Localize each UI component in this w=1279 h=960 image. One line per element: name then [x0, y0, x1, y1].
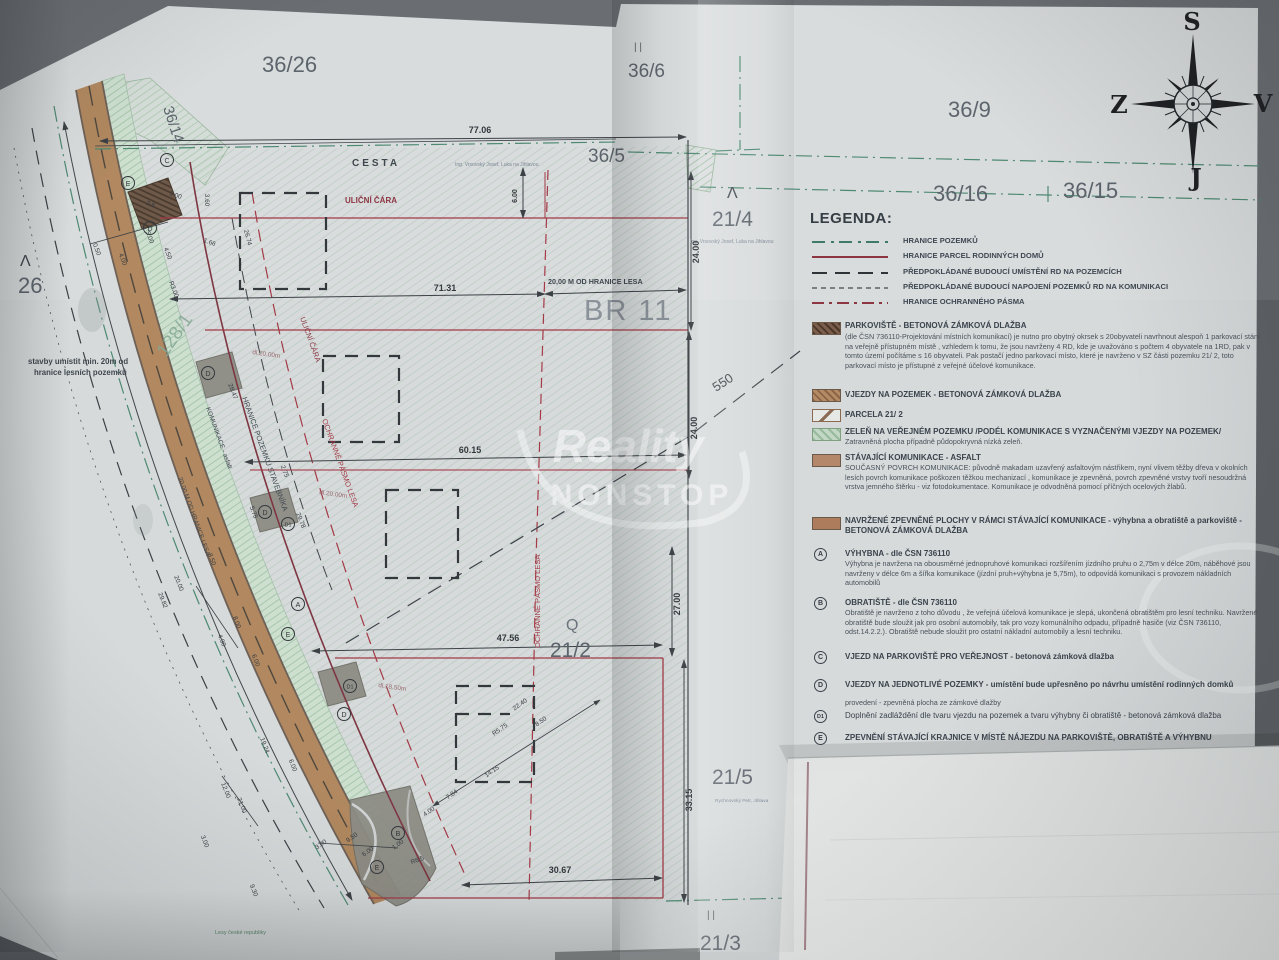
legend-point-body: Výhybna je navržena na obousměrné jednop…: [845, 559, 1263, 588]
legend-panel: LEGENDA: HRANICE POZEMKŮ HRANICE PARCEL …: [0, 0, 1279, 960]
legend-swatch-komunikace: [812, 454, 841, 467]
legend-point-title: OBRATIŠTĚ - dle ČSN 736110: [845, 598, 1257, 608]
legend-point-circle-d: D: [814, 679, 827, 692]
legend-point-title: VJEZDY NA JEDNOTLIVÉ POZEMKY - umístění …: [845, 680, 1257, 690]
legend-swatch-navrzene: [812, 517, 841, 530]
legend-area-body: (dle ČSN 736110-Projektování místních ko…: [845, 332, 1263, 371]
legend-swatch-vjezdy: [812, 389, 841, 402]
legend-point-circle-b: B: [814, 597, 827, 610]
legend-point-circle-d1: D1: [814, 710, 827, 723]
legend-line-sample-ochranne-pasmo: [812, 302, 888, 304]
legend-line-sample-hranice-parcel: [812, 256, 888, 258]
legend-line-label: HRANICE OCHRANNÉHO PÁSMA: [903, 297, 1025, 306]
legend-point-title: Doplnění zadláždění dle tvaru vjezdu na …: [845, 711, 1257, 721]
legend-point-body: Obratiště je navrženo z toho důvodu , že…: [845, 608, 1263, 637]
legend-swatch-zelen: [812, 428, 841, 441]
legend-area-title: STÁVAJÍCÍ KOMUNIKACE - ASFALT: [845, 453, 1257, 463]
legend-point-title: VJEZD NA PARKOVIŠTĚ PRO VEŘEJNOST - beto…: [845, 652, 1257, 662]
legend-area-title: ZELEŇ NA VEŘEJNÉM POZEMKU /PODÉL KOMUNIK…: [845, 427, 1257, 437]
legend-area-title: PARCELA 21/ 2: [845, 410, 1257, 420]
legend-line-label: PŘEDPOKLÁDANÉ BUDOUCÍ NAPOJENÍ POZEMKŮ R…: [903, 282, 1168, 291]
legend-point-title: ZPEVNĚNÍ STÁVAJÍCÍ KRAJNICE V MÍSTĚ NÁJE…: [845, 733, 1257, 743]
legend-area-title: VJEZDY NA POZEMEK - BETONOVÁ ZÁMKOVÁ DLA…: [845, 390, 1257, 400]
legend-point-circle-a: A: [814, 548, 827, 561]
legend-point-title: VÝHYBNA - dle ČSN 736110: [845, 549, 1257, 559]
legend-point-circle-c: C: [814, 651, 827, 664]
legend-line-label: PŘEDPOKLÁDANÉ BUDOUCÍ UMÍSTĚNÍ RD NA POZ…: [903, 267, 1122, 276]
legend-area-title: NAVRŽENÉ ZPEVNĚNÉ PLOCHY V RÁMCI STÁVAJÍ…: [845, 516, 1257, 536]
legend-point-body: provedení - zpevněná plocha ze zámkové d…: [845, 698, 1263, 708]
legend-swatch-parcela: [812, 409, 841, 422]
legend-area-body: Zatravněná plocha případně půdopokryvná …: [845, 437, 1263, 447]
photo-of-site-plan: 36/26 | | 36/6 36/9 36/16 36/15 36/5 36/…: [0, 0, 1279, 960]
legend-title: LEGENDA:: [810, 210, 892, 227]
legend-line-sample-napojeni: [812, 287, 888, 289]
legend-area-title: PARKOVIŠTĚ - BETONOVÁ ZÁMKOVÁ DLAŽBA: [845, 321, 1257, 331]
legend-line-label: HRANICE PARCEL RODINNÝCH DOMŮ: [903, 251, 1044, 260]
legend-line-sample-umisteni-rd: [812, 272, 888, 274]
legend-point-circle-e: E: [814, 732, 827, 745]
legend-swatch-parkoviste: [812, 322, 841, 335]
legend-line-label: HRANICE POZEMKŮ: [903, 236, 978, 245]
legend-line-sample-hranice-pozemku: [812, 241, 888, 243]
legend-area-body: SOUČASNÝ POVRCH KOMUNIKACE: původně maka…: [845, 463, 1263, 492]
